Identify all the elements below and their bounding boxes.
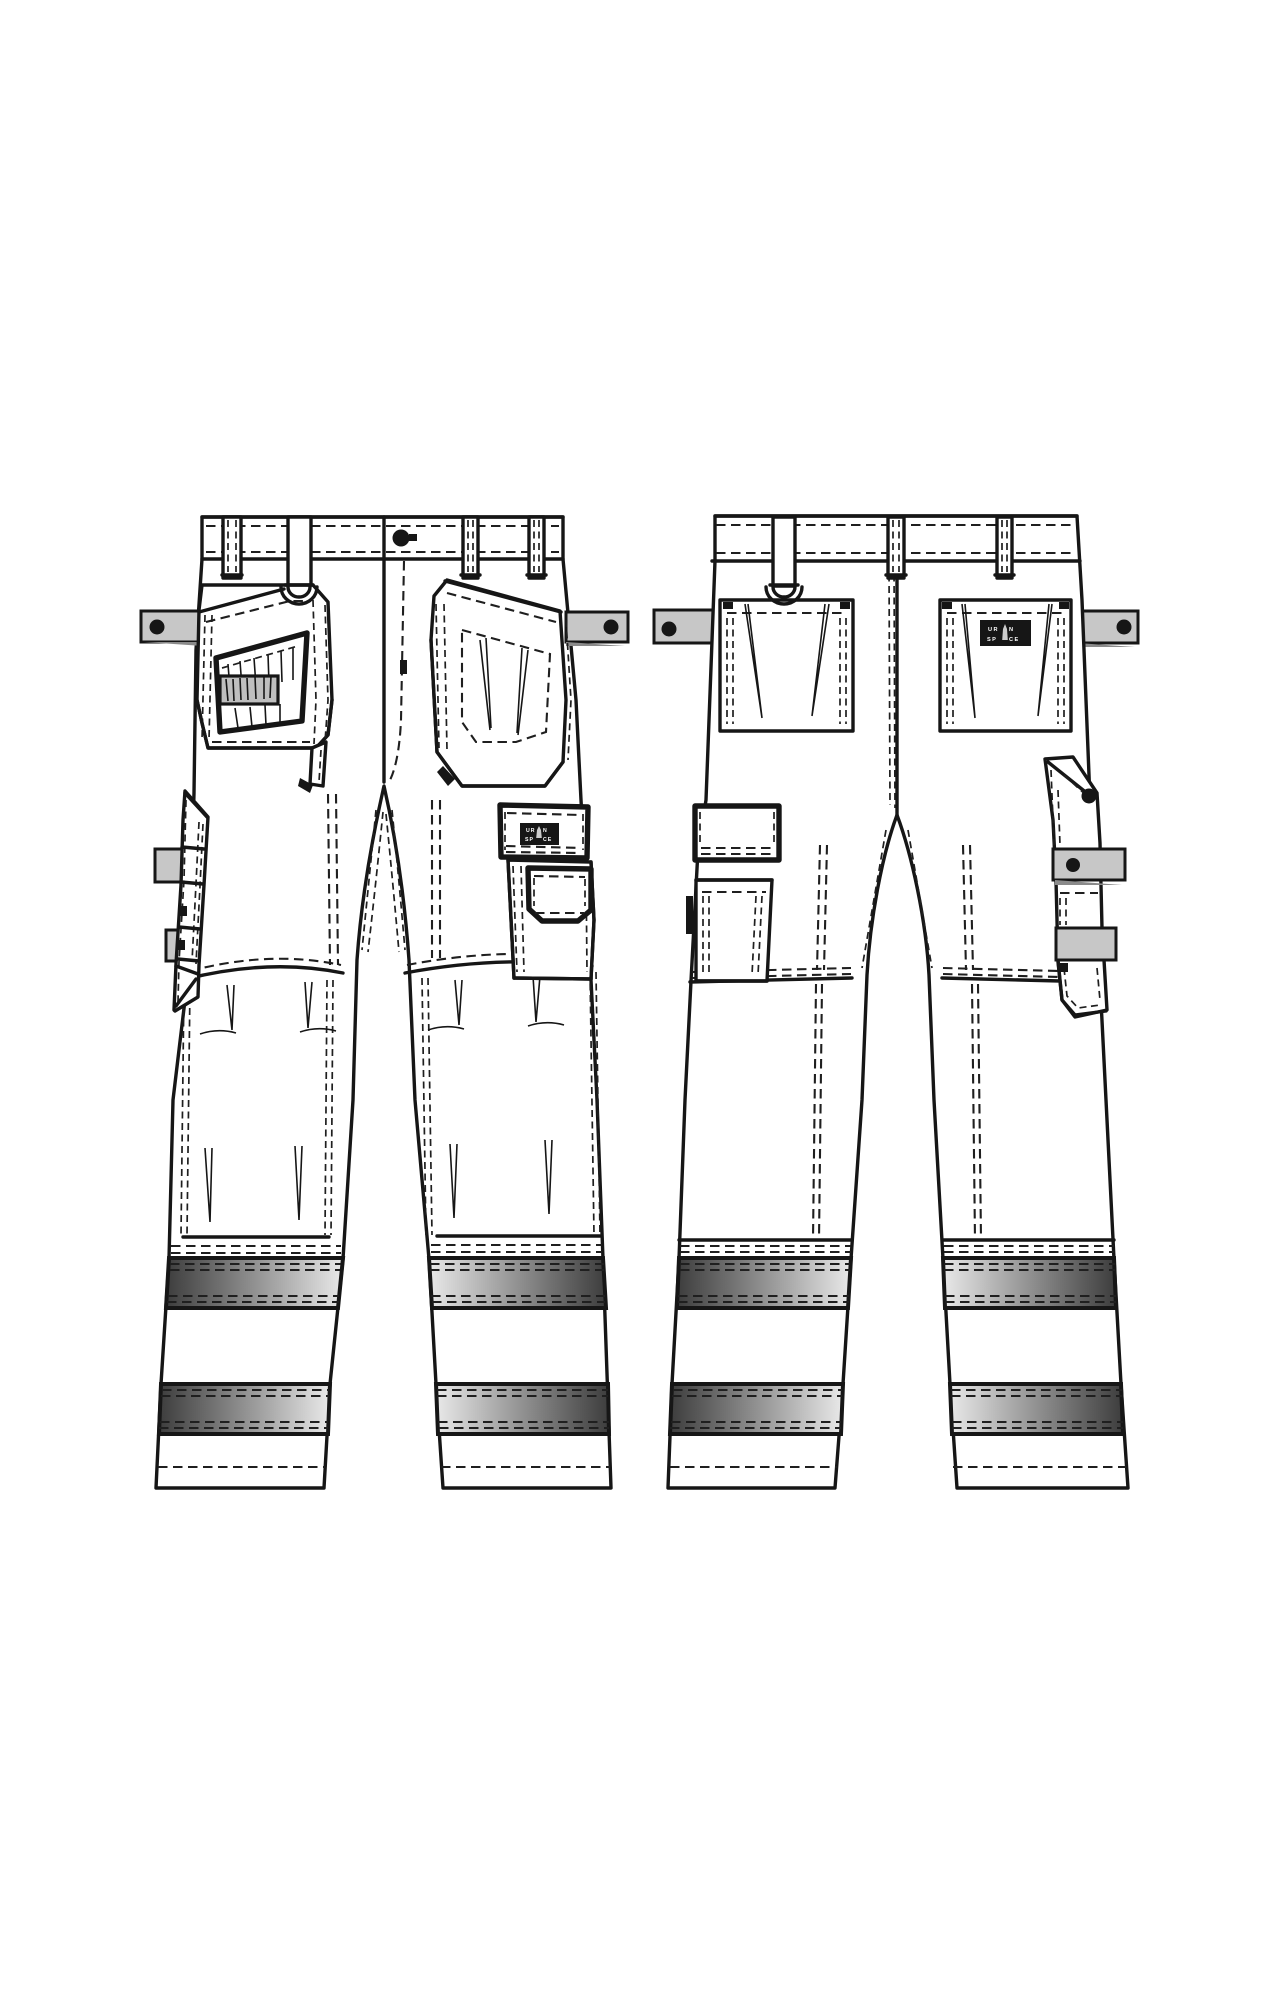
svg-text:N: N bbox=[1009, 627, 1014, 633]
svg-text:UR: UR bbox=[526, 828, 536, 834]
svg-text:SP: SP bbox=[525, 837, 534, 843]
svg-text:CE: CE bbox=[543, 837, 552, 843]
svg-text:UR: UR bbox=[988, 627, 999, 633]
svg-text:N: N bbox=[543, 828, 548, 834]
svg-text:CE: CE bbox=[1009, 637, 1020, 643]
svg-text:SP: SP bbox=[987, 637, 997, 643]
